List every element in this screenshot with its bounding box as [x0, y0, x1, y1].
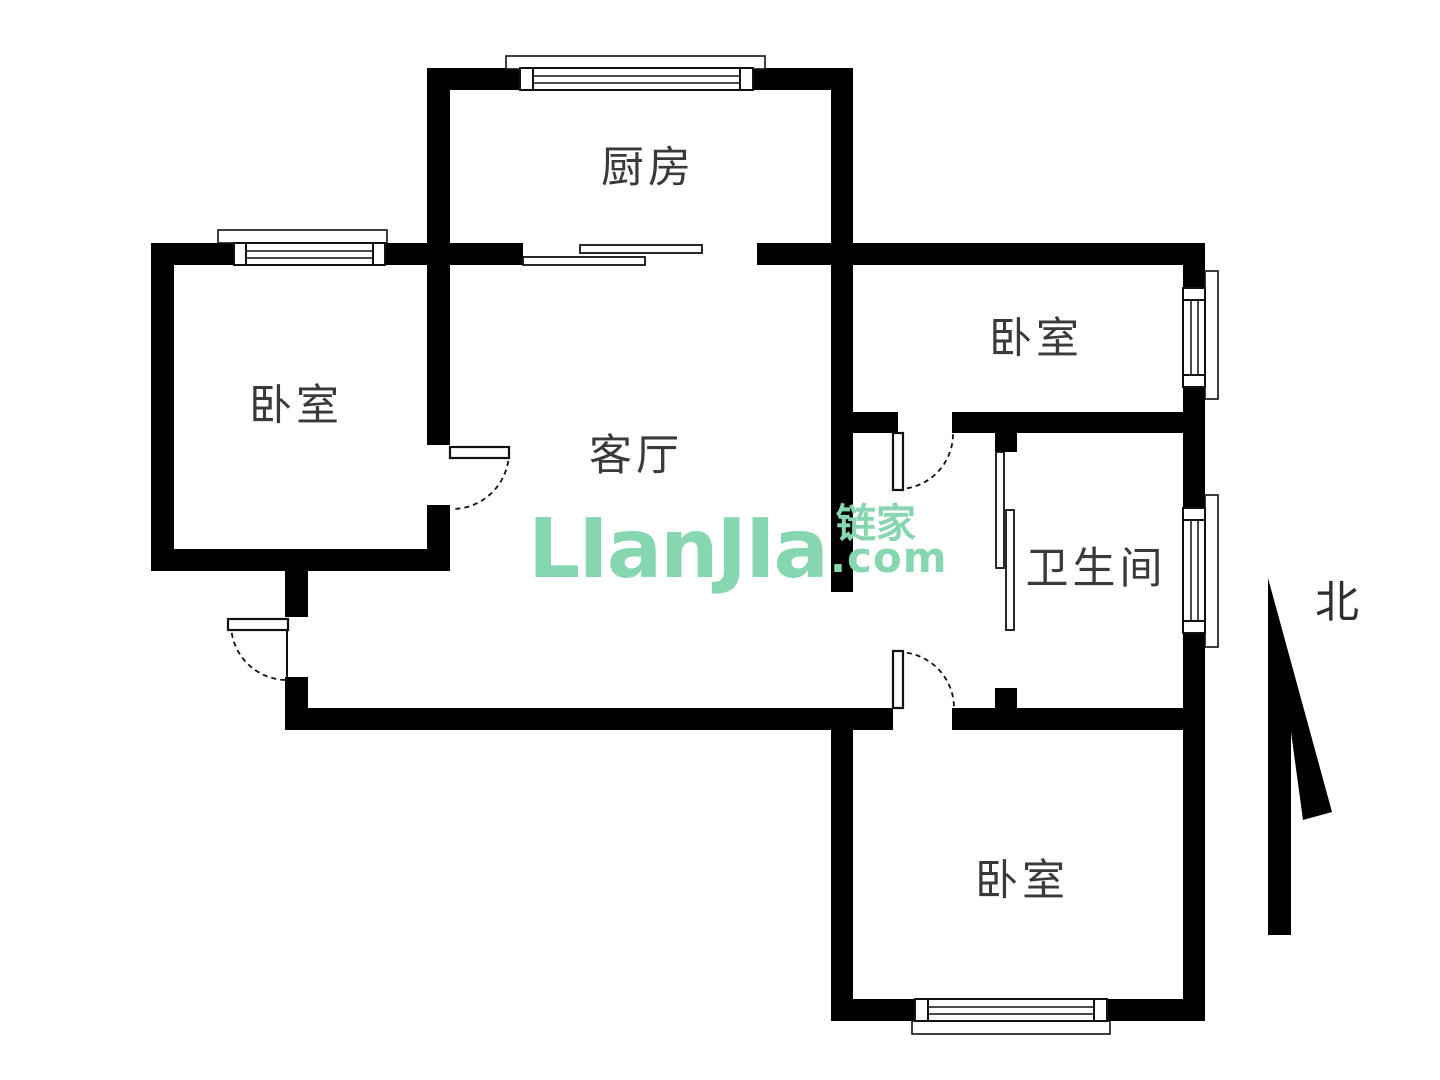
bedroom-left-window-glazing — [246, 243, 373, 265]
wall-entry-lower — [285, 677, 308, 730]
entry-door-leaf — [228, 619, 288, 630]
watermark-brand-text: LIanJIa — [528, 502, 827, 597]
wall-east-c — [1183, 633, 1205, 1021]
bathroom-window-glazing — [1183, 520, 1205, 621]
bedroom-bottom-door-leaf — [893, 651, 903, 708]
bathroom-window-sill — [1205, 495, 1218, 647]
wall-hallway-north-right — [952, 412, 1205, 433]
wall-bathroom-west-stub-top — [995, 433, 1017, 452]
bedroom-bottom-window — [912, 999, 1110, 1034]
wall-east-b — [1183, 387, 1205, 508]
kitchen-window-cap-left — [520, 68, 533, 90]
bedroom-top-right-door-arc — [898, 434, 953, 489]
wall-bedroom-left-east-lower — [427, 505, 450, 571]
bedroom-left-window-cap-left — [234, 243, 246, 265]
wall-bedroom-left-west — [151, 243, 174, 571]
bedroom-top-right-door-leaf — [893, 433, 903, 490]
bathroom-sliding-door-panel-2 — [1006, 510, 1014, 630]
wall-south-band-left — [285, 708, 893, 730]
north-arrow — [1268, 578, 1332, 935]
bedroom-top-right-window-cap-top — [1183, 288, 1205, 300]
wall-south-band-right — [952, 708, 1205, 730]
bathroom-window — [1183, 495, 1218, 647]
bathroom-sliding-door-panel-1 — [996, 452, 1004, 568]
room-label-kitchen: 厨房 — [601, 143, 695, 193]
wall-bathroom-west-stub-bottom — [995, 688, 1017, 708]
wall-east-a — [1183, 243, 1205, 288]
wall-bedroom-bottom-west — [831, 708, 853, 1021]
room-label-living-room: 客厅 — [589, 431, 683, 481]
bedroom-bottom-window-cap-right — [1094, 999, 1107, 1021]
entry-door-arc — [231, 624, 287, 680]
room-label-bedroom-left: 卧室 — [249, 381, 343, 431]
kitchen-sliding-door-panel-2 — [523, 257, 645, 265]
room-label-bedroom-top-right: 卧室 — [989, 314, 1083, 364]
kitchen-window-cap-right — [740, 68, 753, 90]
lianjia-watermark: LIanJIa 链家 .com — [528, 501, 947, 597]
room-label-bathroom: 卫生间 — [1026, 544, 1167, 594]
kitchen-window — [506, 56, 765, 90]
bedroom-bottom-window-cap-left — [915, 999, 928, 1021]
bedroom-top-right-window-cap-bottom — [1183, 375, 1205, 387]
bedroom-top-right-window — [1183, 271, 1218, 399]
watermark-tld-text: .com — [830, 533, 947, 582]
bedroom-bottom-window-sill — [912, 1021, 1110, 1034]
room-label-bedroom-bottom: 卧室 — [975, 856, 1069, 906]
north-label: 北 — [1315, 577, 1359, 628]
kitchen-window-glazing — [533, 68, 740, 90]
bathroom-window-cap-bottom — [1183, 621, 1205, 633]
bedroom-bottom-door-arc — [898, 652, 954, 708]
bedroom-left-window-cap-right — [373, 243, 385, 265]
bedroom-left-door-arc — [452, 452, 509, 509]
bathroom-window-cap-top — [1183, 508, 1205, 520]
wall-bedroom-left-east-upper — [427, 68, 450, 445]
bedroom-left-window-sill — [218, 230, 387, 243]
bedroom-bottom-window-glazing — [928, 999, 1094, 1021]
floor-plan-canvas: 北 厨房 卧室 客厅 卧室 卫生间 卧室 LIanJIa 链家 .com — [0, 0, 1440, 1080]
kitchen-sliding-door-panel-1 — [580, 245, 702, 253]
bedroom-left-window — [218, 230, 387, 265]
wall-upper-band-b — [385, 243, 523, 265]
bedroom-top-right-window-sill — [1205, 271, 1218, 399]
floor-plan-drawing: 北 厨房 卧室 客厅 卧室 卫生间 卧室 LIanJIa 链家 .com — [0, 0, 1440, 1080]
wall-entry-upper — [285, 549, 308, 617]
bedroom-left-door-leaf — [450, 447, 509, 458]
bedroom-top-right-window-glazing — [1183, 300, 1205, 375]
wall-upper-band-c — [757, 243, 1205, 265]
